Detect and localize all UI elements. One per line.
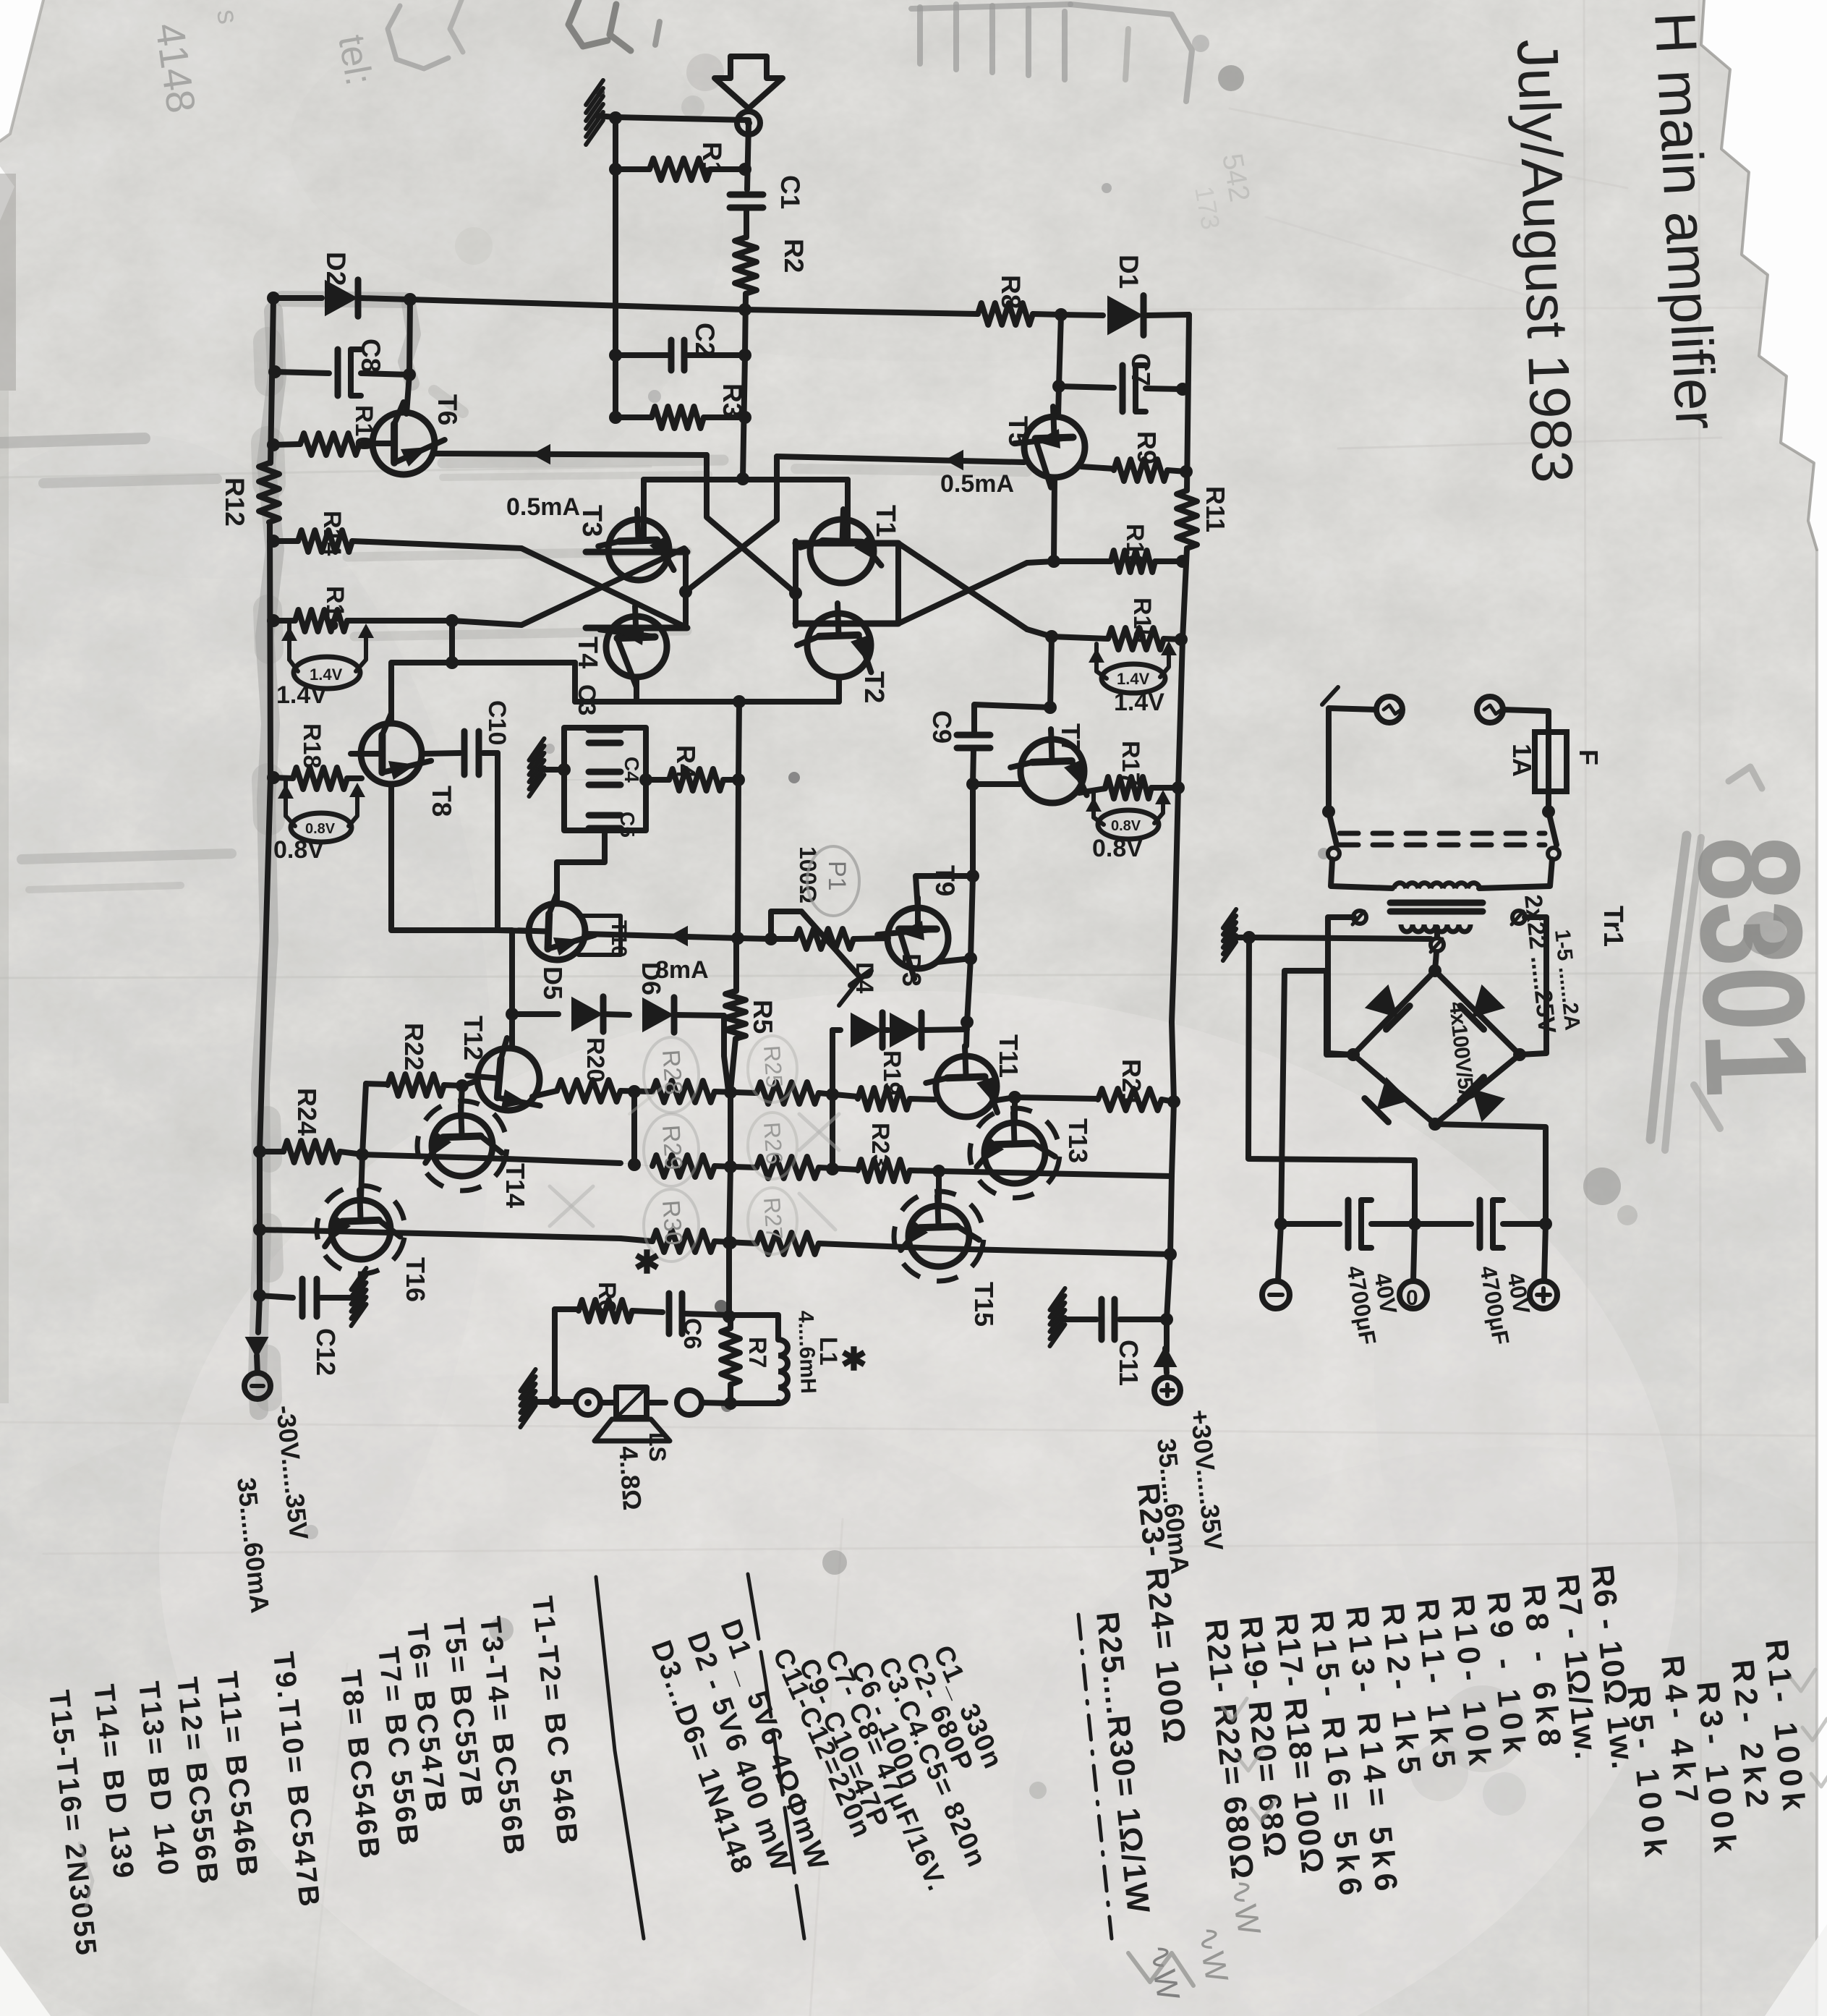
svg-text:R1: R1 <box>697 142 727 176</box>
svg-text:T13: T13 <box>1063 1118 1093 1163</box>
svg-text:T8: T8 <box>427 786 456 817</box>
svg-text:C11: C11 <box>1114 1340 1144 1386</box>
svg-text:D2: D2 <box>321 252 351 286</box>
svg-text:C10: C10 <box>483 700 511 745</box>
svg-text:✱: ✱ <box>634 1245 660 1280</box>
svg-text:R23: R23 <box>866 1123 894 1168</box>
svg-text:C6: C6 <box>678 1318 706 1349</box>
svg-text:1.4V: 1.4V <box>310 665 343 684</box>
svg-text:0.8V: 0.8V <box>273 836 324 864</box>
svg-text:C12: C12 <box>311 1328 341 1376</box>
svg-text:R7: R7 <box>744 1337 771 1368</box>
svg-text:D6: D6 <box>636 962 666 995</box>
svg-text:R12: R12 <box>220 477 250 527</box>
svg-text:R25: R25 <box>759 1045 788 1089</box>
svg-text:T4: T4 <box>572 637 602 668</box>
svg-text:Tr1: Tr1 <box>1598 906 1628 947</box>
svg-text:1.4V: 1.4V <box>276 681 327 709</box>
svg-text:R15: R15 <box>1128 597 1156 642</box>
svg-text:R27: R27 <box>759 1196 788 1241</box>
svg-text:R16: R16 <box>321 586 349 631</box>
svg-text:8301: 8301 <box>1667 833 1827 1100</box>
svg-text:T15: T15 <box>969 1282 999 1327</box>
svg-text:D1: D1 <box>1114 255 1144 289</box>
svg-text:R22: R22 <box>399 1023 429 1071</box>
svg-text:R8: R8 <box>996 275 1026 309</box>
svg-text:R9: R9 <box>1132 431 1162 464</box>
svg-text:0.8V: 0.8V <box>1111 818 1141 834</box>
svg-text:T1: T1 <box>870 505 900 537</box>
svg-text:C2: C2 <box>690 323 720 357</box>
svg-text:R19: R19 <box>878 1050 906 1095</box>
svg-text:✱: ✱ <box>840 1342 867 1377</box>
svg-text:R13: R13 <box>1121 524 1149 569</box>
svg-text:R24: R24 <box>292 1088 322 1136</box>
svg-text:R14: R14 <box>318 511 346 556</box>
svg-text:C8: C8 <box>356 339 386 373</box>
svg-text:R18: R18 <box>298 723 325 768</box>
svg-text:0.5mA: 0.5mA <box>940 470 1014 498</box>
svg-text:T16: T16 <box>401 1257 430 1302</box>
svg-text:R10: R10 <box>350 405 378 450</box>
svg-text:1.4V: 1.4V <box>1117 670 1150 688</box>
svg-text:R26: R26 <box>759 1121 788 1165</box>
svg-text:0.8V: 0.8V <box>1092 835 1143 862</box>
svg-text:R5: R5 <box>748 1000 778 1034</box>
svg-text:R4: R4 <box>671 745 701 778</box>
svg-text:T7: T7 <box>1056 723 1086 754</box>
svg-text:T6: T6 <box>433 394 462 425</box>
svg-text:T5: T5 <box>1003 416 1033 447</box>
svg-text:C7: C7 <box>1126 353 1156 386</box>
svg-text:1.4V: 1.4V <box>1114 689 1164 716</box>
svg-text:T14: T14 <box>501 1163 530 1208</box>
svg-text:0.8V: 0.8V <box>305 821 336 837</box>
svg-text:F: F <box>1574 749 1604 765</box>
svg-text:T9: T9 <box>930 865 960 896</box>
svg-text:4..8Ω: 4..8Ω <box>613 1445 647 1512</box>
svg-text:C3: C3 <box>573 684 600 715</box>
svg-text:C5: C5 <box>616 812 639 838</box>
svg-text:R6: R6 <box>593 1282 621 1313</box>
svg-text:0.5mA: 0.5mA <box>506 493 580 521</box>
svg-text:D3: D3 <box>897 953 927 987</box>
svg-text:R17: R17 <box>1117 741 1144 786</box>
svg-text:1A: 1A <box>1507 744 1537 777</box>
svg-text:0: 0 <box>1406 1286 1418 1310</box>
svg-text:tel:: tel: <box>330 32 380 88</box>
svg-text:C1: C1 <box>775 175 805 209</box>
svg-text:P1: P1 <box>823 861 851 891</box>
svg-text:LS: LS <box>644 1432 670 1462</box>
svg-text:C9: C9 <box>927 710 957 744</box>
svg-text:4....6mH: 4....6mH <box>793 1310 820 1394</box>
svg-text:T10: T10 <box>607 920 631 958</box>
svg-text:R11: R11 <box>1201 486 1230 532</box>
svg-text:T3: T3 <box>576 505 607 537</box>
svg-text:T11: T11 <box>994 1034 1023 1078</box>
svg-text:R29: R29 <box>657 1124 687 1171</box>
svg-text:R20: R20 <box>582 1037 609 1082</box>
svg-text:R30: R30 <box>657 1199 687 1246</box>
svg-text:R21: R21 <box>1117 1059 1146 1107</box>
svg-text:R2: R2 <box>779 239 809 273</box>
svg-text:D5: D5 <box>538 966 568 1000</box>
svg-text:T12: T12 <box>459 1016 488 1060</box>
svg-text:T2: T2 <box>859 671 889 703</box>
